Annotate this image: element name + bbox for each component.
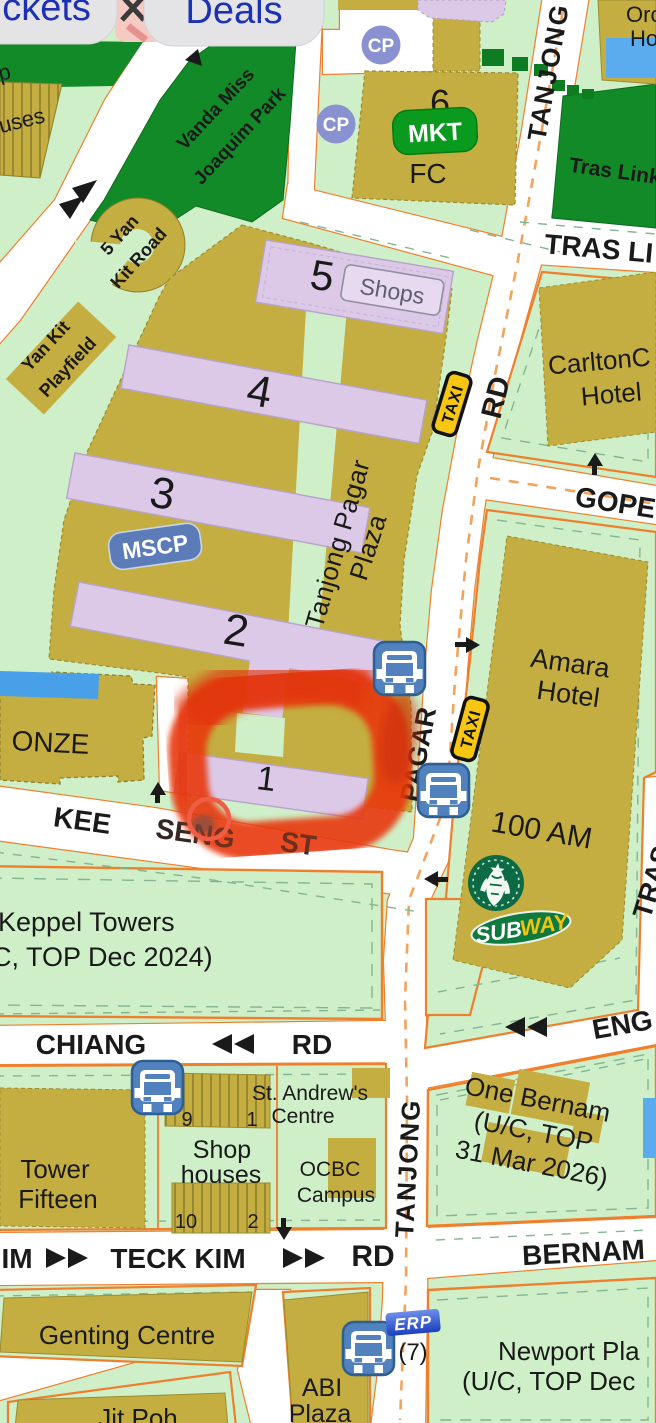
- svg-text:Newport Pla: Newport Pla: [498, 1336, 640, 1366]
- svg-text:ST: ST: [278, 826, 318, 862]
- svg-text:ERP: ERP: [393, 1312, 432, 1334]
- svg-text:MKT: MKT: [407, 118, 463, 149]
- svg-text:TECK KIM: TECK KIM: [110, 1243, 245, 1274]
- svg-text:St. Andrew's: St. Andrew's: [252, 1082, 368, 1105]
- svg-text:(7): (7): [398, 1339, 427, 1366]
- svg-text:ONZE: ONZE: [11, 725, 90, 760]
- svg-text:Jit Poh: Jit Poh: [98, 1403, 178, 1423]
- svg-text:2: 2: [247, 1211, 258, 1233]
- svg-text:9: 9: [181, 1109, 192, 1131]
- svg-text:Shop: Shop: [193, 1136, 251, 1164]
- svg-text:Campus: Campus: [297, 1184, 375, 1207]
- svg-text:houses: houses: [181, 1161, 262, 1189]
- svg-text:C, TOP Dec 2024): C, TOP Dec 2024): [0, 942, 213, 972]
- svg-text:(U/C, TOP Dec: (U/C, TOP Dec: [462, 1366, 635, 1396]
- svg-text:Tower: Tower: [20, 1154, 90, 1184]
- svg-text:IM: IM: [1, 1243, 32, 1274]
- svg-text:Tickets: Tickets: [0, 0, 91, 29]
- svg-text:ABI: ABI: [302, 1374, 342, 1402]
- svg-text:Centre: Centre: [271, 1105, 334, 1128]
- svg-text:Deals: Deals: [185, 0, 282, 32]
- svg-text:RD: RD: [292, 1029, 332, 1060]
- svg-text:Plaza: Plaza: [289, 1400, 352, 1423]
- svg-text:OCBC: OCBC: [300, 1158, 361, 1181]
- svg-text:BERNAM: BERNAM: [521, 1234, 645, 1271]
- svg-text:CHIANG: CHIANG: [36, 1029, 146, 1060]
- svg-text:Fifteen: Fifteen: [18, 1184, 98, 1214]
- svg-text:1: 1: [246, 1109, 257, 1131]
- svg-text:Orc: Orc: [626, 2, 656, 27]
- svg-text:Hot: Hot: [630, 26, 656, 51]
- svg-text:Genting Centre: Genting Centre: [39, 1320, 215, 1350]
- svg-text:RD: RD: [351, 1240, 394, 1273]
- svg-text:Hotel: Hotel: [580, 376, 643, 411]
- svg-text:Keppel Towers: Keppel Towers: [0, 907, 175, 937]
- svg-text:10: 10: [175, 1211, 197, 1233]
- svg-text:FC: FC: [409, 158, 446, 189]
